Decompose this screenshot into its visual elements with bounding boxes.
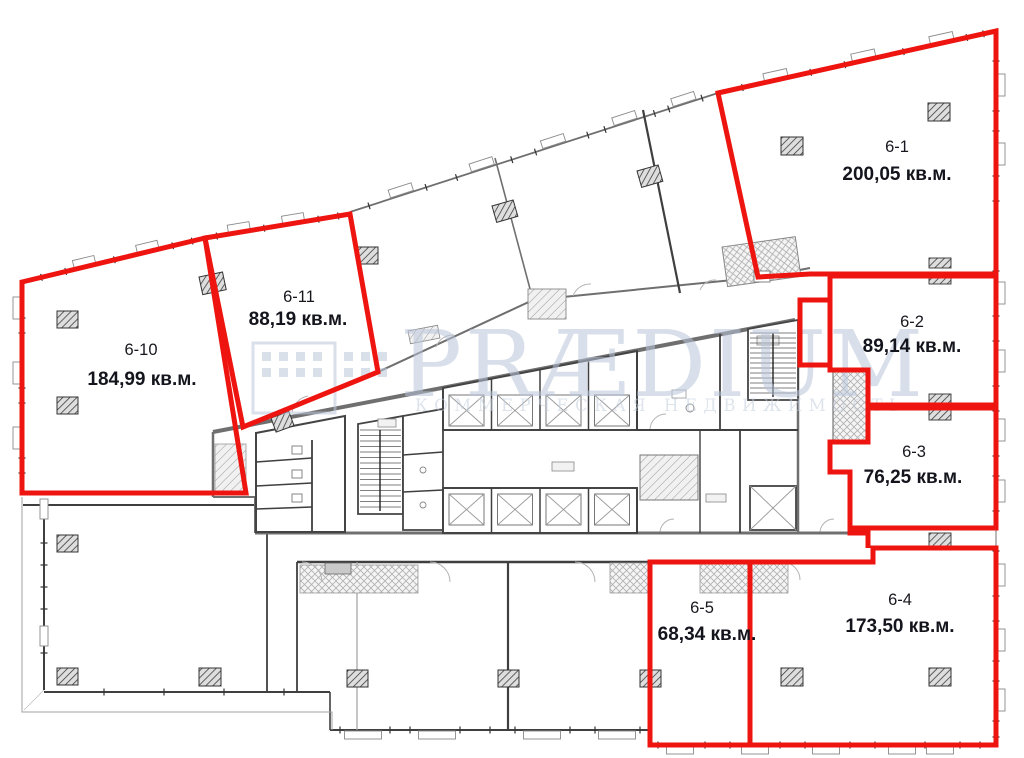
column [928,103,950,121]
unit-region-6-1[interactable] [718,31,996,277]
column [929,533,951,546]
column [929,668,951,686]
column [347,670,368,687]
column [57,397,78,414]
watermark-subtitle: КОММЕРЧЕСКАЯ НЕДВИЖИМОСТЬ [415,396,906,415]
unit-area-label: 184,99 кв.м. [87,369,196,390]
unit-area-label: 200,05 кв.м. [842,164,951,185]
unit-id-label: 6-11 [283,288,315,306]
unit-area-label: 68,34 кв.м. [658,624,757,645]
column [781,668,803,686]
unit-id-label: 6-2 [900,313,924,331]
unit-id-label: 6-4 [888,591,912,609]
column [498,670,519,687]
unit-area-label: 88,19 кв.м. [249,309,348,330]
column [57,311,78,328]
unit-area-label: 173,50 кв.м. [845,616,954,637]
column [929,410,951,420]
column [57,668,78,685]
floor-plan-page: PRÆDIUM КОММЕРЧЕСКАЯ НЕДВИЖИМОСТЬ 6-1 20… [0,0,1024,758]
column [57,535,78,552]
column [492,200,518,222]
unit-boundary-jog-b [850,528,868,548]
wc-block [256,416,345,532]
column [781,137,803,155]
floor-plan-canvas: PRÆDIUM КОММЕРЧЕСКАЯ НЕДВИЖИМОСТЬ 6-1 20… [0,0,1024,758]
unit-id-label: 6-10 [124,341,157,359]
column [199,668,221,686]
unit-id-label: 6-3 [902,443,926,461]
column [929,258,951,268]
unit-id-label: 6-1 [885,138,909,156]
unit-area-label: 89,14 кв.м. [863,336,962,357]
unit-id-label: 6-5 [690,599,714,617]
unit-area-label: 76,25 кв.м. [864,467,963,488]
